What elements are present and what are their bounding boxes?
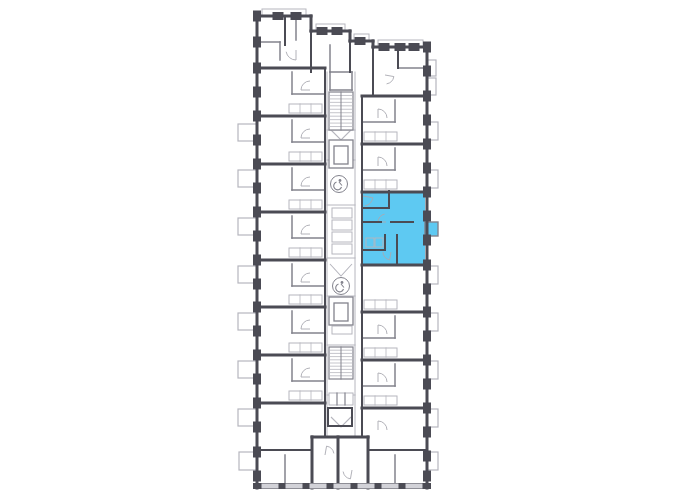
- floor-plan-viewer: [0, 0, 680, 500]
- selected-apartment-highlight[interactable]: [363, 191, 425, 265]
- floor-plan-svg: [0, 0, 680, 500]
- wheelchair-icon: [331, 176, 348, 193]
- wheelchair-icon: [333, 278, 350, 295]
